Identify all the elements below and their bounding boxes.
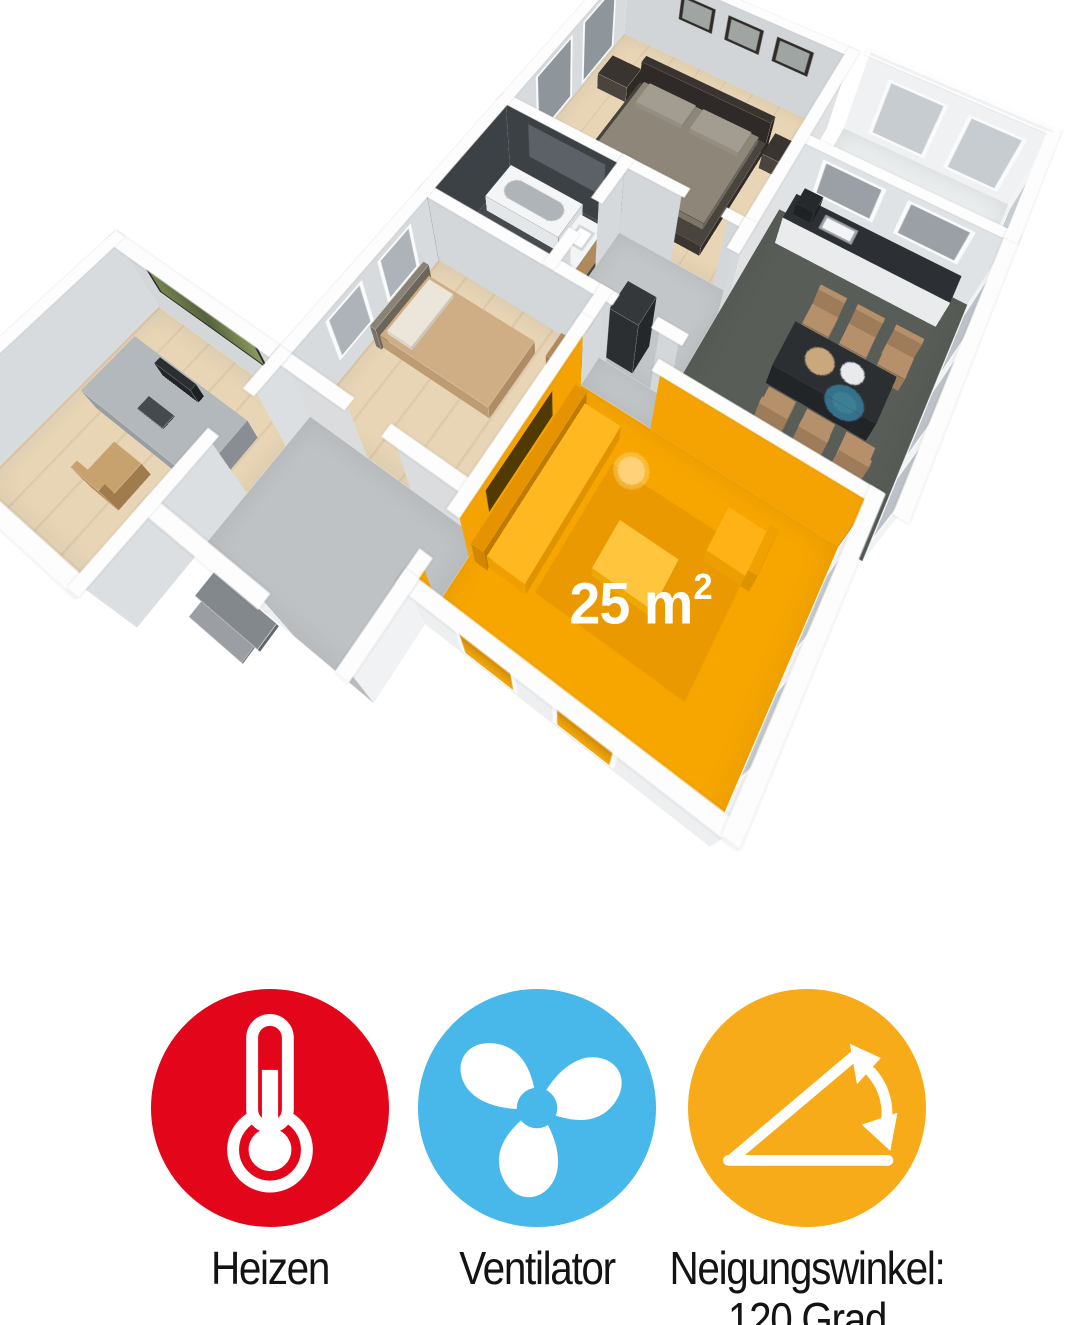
wall-picture — [679, 0, 716, 34]
heating-feature — [151, 989, 389, 1227]
area-value: 25 m — [569, 571, 692, 636]
product-infographic: 25 m2 Heizen Ventilator — [0, 0, 1073, 1325]
area-superscript: 2 — [693, 566, 711, 607]
area-label: 25 m2 — [525, 570, 755, 637]
tilt-angle-label-line1: Neigungswinkel: — [657, 1243, 956, 1294]
wood-plate — [800, 342, 839, 381]
heating-label: Heizen — [120, 1243, 419, 1294]
tilt-angle-label-line2: 120 Grad — [657, 1294, 956, 1325]
wall-picture — [724, 15, 764, 55]
wall-picture — [772, 37, 814, 77]
floor-plan-3d — [0, 0, 1073, 960]
fan-label: Ventilator — [387, 1243, 686, 1294]
floor-lamp — [613, 451, 650, 490]
tilt-angle-label: Neigungswinkel: 120 Grad — [657, 1243, 956, 1325]
fan-feature — [418, 989, 656, 1227]
tilt-angle-feature — [688, 989, 926, 1227]
